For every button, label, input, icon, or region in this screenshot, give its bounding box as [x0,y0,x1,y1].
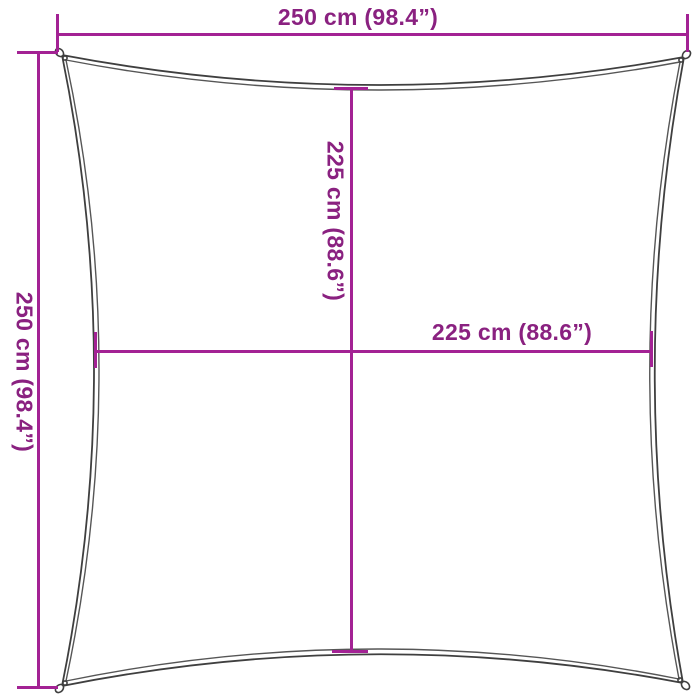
dimension-line-top [57,33,689,36]
dimension-line-center-vertical [350,87,353,653]
sail-outer-edge [62,55,684,686]
dimension-diagram: 250 cm (98.4”) 250 cm (98.4”) 225 cm (88… [0,0,700,700]
dimension-tick-center-vertical-top [334,87,368,90]
dimension-label-center-width: 225 cm (88.6”) [432,320,592,345]
dimension-tick-center-horizontal-left [94,332,97,368]
dimension-line-center-horizontal [94,350,653,353]
dimension-label-center-height: 225 cm (88.6”) [322,141,347,301]
dimension-tick-center-horizontal-right [650,331,653,367]
dimension-label-top-width: 250 cm (98.4”) [278,5,438,30]
dimension-label-left-height: 250 cm (98.4”) [11,292,36,452]
dimension-tick-top-left [56,14,59,52]
dimension-tick-top-right [686,14,689,52]
dimension-tick-left-bottom [17,686,58,689]
dimension-tick-center-vertical-bottom [332,650,368,653]
dimension-tick-left-top [17,51,58,54]
